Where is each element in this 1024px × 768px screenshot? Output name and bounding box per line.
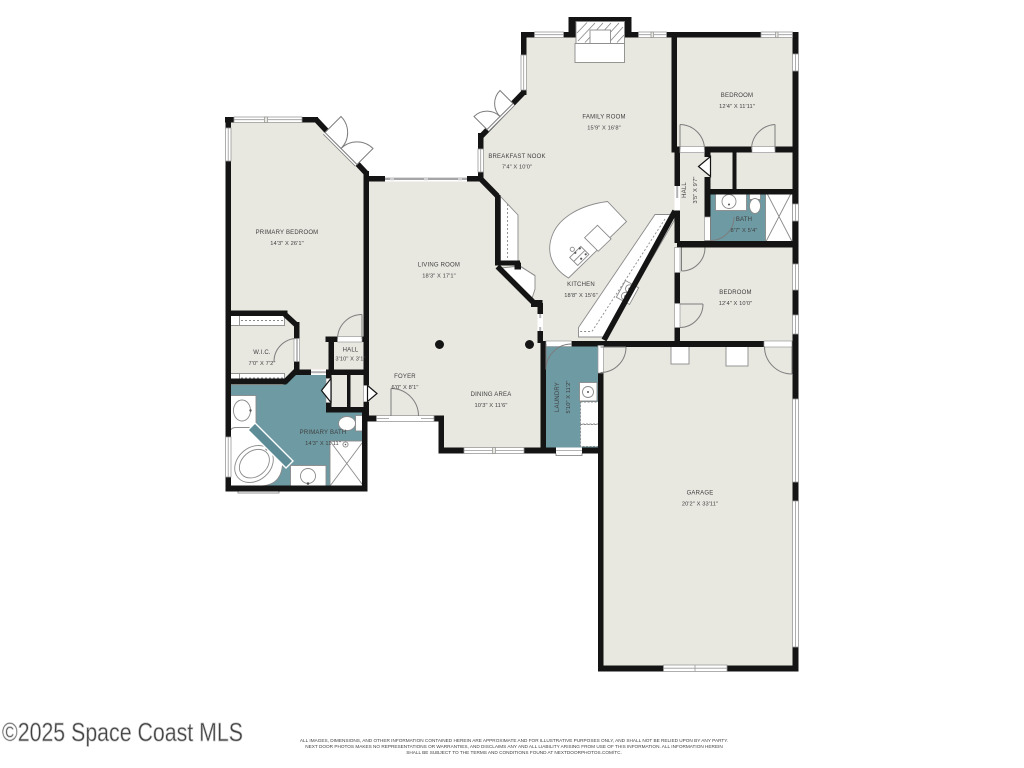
svg-text:3'5" X 9'7": 3'5" X 9'7" [693,177,699,204]
svg-text:PRIMARY BATH: PRIMARY BATH [300,430,347,436]
svg-text:6'0" X 8'1": 6'0" X 8'1" [392,385,419,391]
svg-text:BEDROOM: BEDROOM [719,290,751,296]
svg-text:ALL IMAGES, DIMENSIONS, AND OT: ALL IMAGES, DIMENSIONS, AND OTHER INFORM… [300,738,728,743]
svg-text:7'4" X 10'0": 7'4" X 10'0" [502,165,532,171]
svg-text:DINING AREA: DINING AREA [471,392,512,398]
svg-text:KITCHEN: KITCHEN [567,282,595,288]
svg-text:10'3" X 11'6": 10'3" X 11'6" [474,403,507,409]
svg-text:FOYER: FOYER [394,374,416,380]
svg-text:PRIMARY BEDROOM: PRIMARY BEDROOM [256,230,319,236]
svg-text:SHALL BE SUBJECT TO THE TERMS: SHALL BE SUBJECT TO THE TERMS AND CONDIT… [406,750,622,755]
svg-text:LIVING ROOM: LIVING ROOM [418,263,460,269]
svg-text:8'7" X 5'4": 8'7" X 5'4" [731,228,758,234]
svg-text:BATH: BATH [736,217,752,223]
svg-text:HALL: HALL [682,182,688,198]
svg-text:FAMILY ROOM: FAMILY ROOM [582,115,625,121]
svg-text:BEDROOM: BEDROOM [721,93,753,99]
svg-text:12'4" X 10'0": 12'4" X 10'0" [719,301,752,307]
svg-text:5'10" X 11'2": 5'10" X 11'2" [566,380,572,413]
svg-text:NEXT DOOR PHOTOS MAKES NO REPR: NEXT DOOR PHOTOS MAKES NO REPRESENTATION… [305,744,723,749]
svg-text:20'2" X 33'11": 20'2" X 33'11" [682,502,718,508]
svg-text:14'3" X 11'11": 14'3" X 11'11" [305,441,341,447]
svg-text:LAUNDRY: LAUNDRY [555,382,561,412]
svg-text:12'4" X 11'11": 12'4" X 11'11" [719,104,755,110]
svg-text:HALL: HALL [343,348,359,354]
svg-text:18'8" X 15'6": 18'8" X 15'6" [564,293,597,299]
svg-text:©2025 Space Coast MLS: ©2025 Space Coast MLS [2,717,243,747]
svg-text:14'3" X 26'1": 14'3" X 26'1" [270,241,303,247]
svg-text:BREAKFAST NOOK: BREAKFAST NOOK [488,154,545,160]
svg-text:GARAGE: GARAGE [687,491,714,497]
svg-text:18'3" X 17'1": 18'3" X 17'1" [422,274,455,280]
svg-text:7'0" X 7'2": 7'0" X 7'2" [249,361,276,367]
svg-text:W.I.C.: W.I.C. [253,350,271,356]
svg-text:15'9" X 16'8": 15'9" X 16'8" [587,126,620,132]
svg-text:3'10" X 3'1": 3'10" X 3'1" [335,357,365,363]
